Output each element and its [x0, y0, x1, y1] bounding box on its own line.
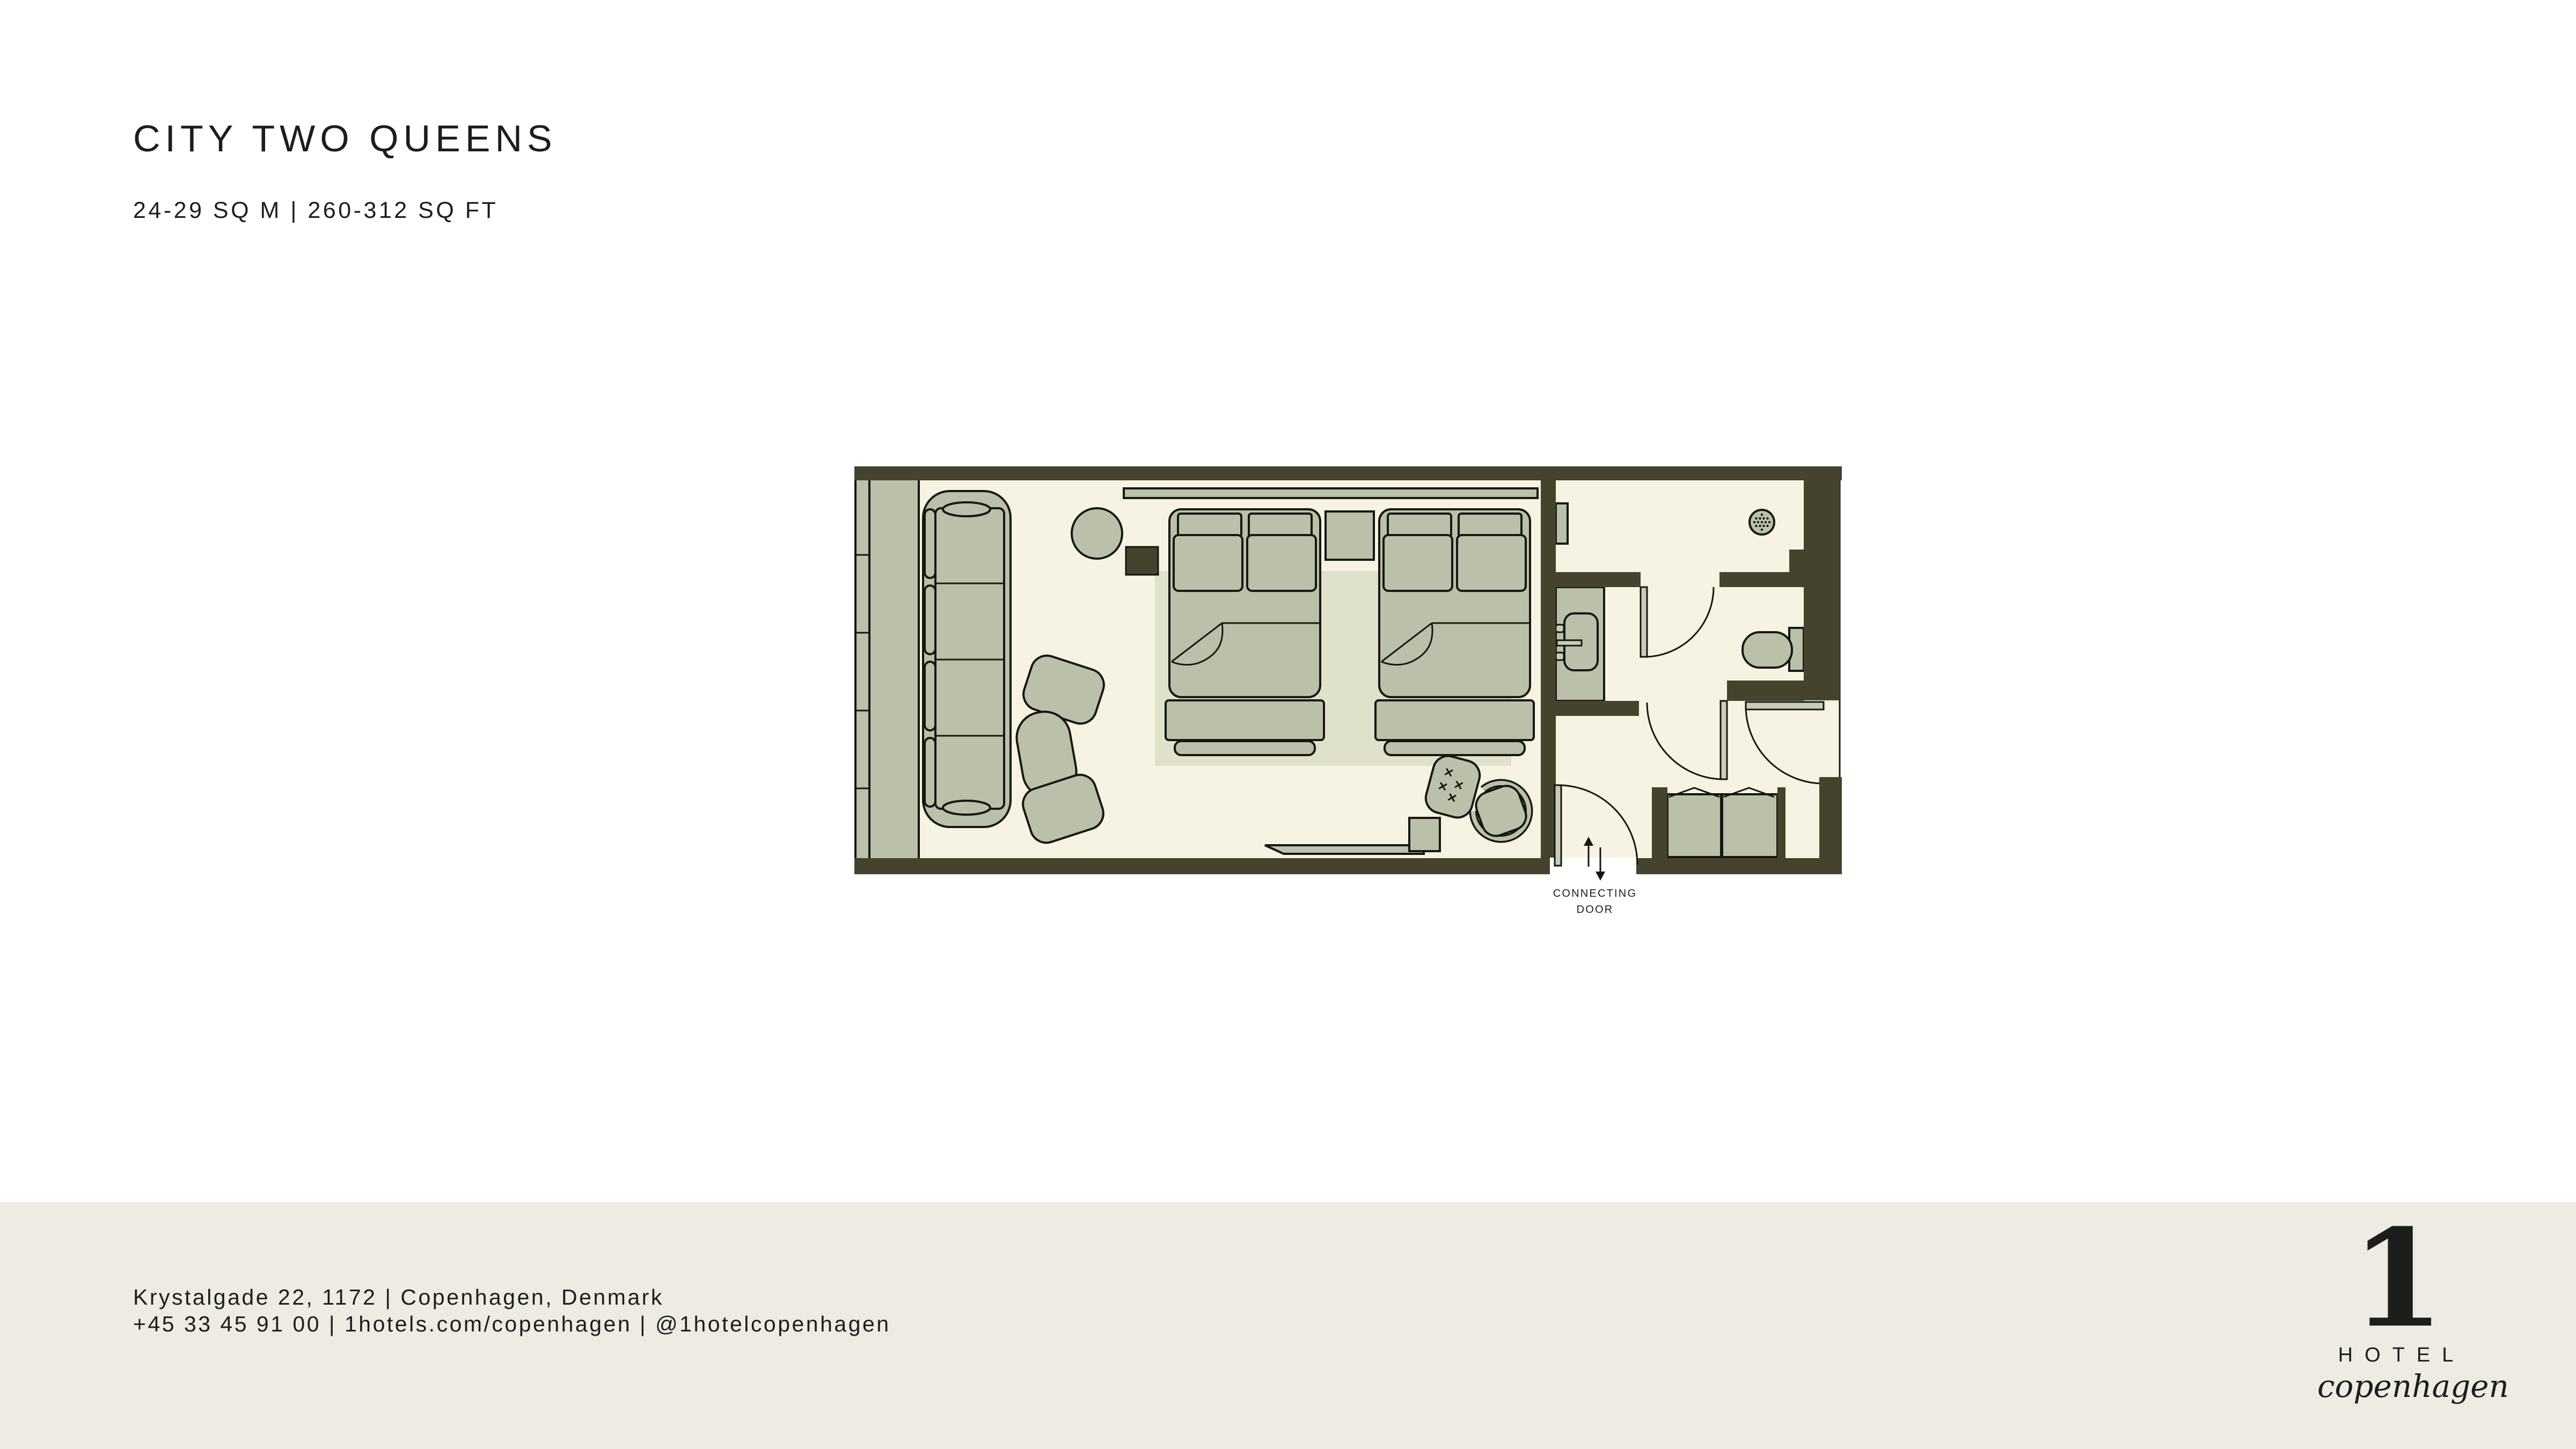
console-shelf	[1124, 488, 1538, 498]
svg-text:DOOR: DOOR	[1577, 904, 1614, 916]
connecting-door-label: CONNECTING DOOR	[1553, 888, 1637, 916]
shower-niche	[1556, 503, 1568, 544]
footer-contact-block: Krystalgade 22, 1172 | Copenhagen, Denma…	[133, 1284, 891, 1337]
window-ledge	[869, 479, 919, 873]
nightstand	[1326, 511, 1374, 560]
svg-text:CONNECTING: CONNECTING	[1553, 888, 1637, 899]
room-size-subtitle: 24-29 SQ M | 260-312 SQ FT	[133, 197, 498, 224]
logo-numeral: 1	[2317, 1221, 2478, 1335]
page-title: CITY TWO QUEENS	[133, 117, 557, 160]
side-table	[1072, 508, 1122, 559]
desk	[1265, 845, 1424, 854]
logo-word: HOTEL	[2317, 1344, 2478, 1367]
window-strip	[855, 479, 869, 873]
logo-script: copenhagen	[2317, 1368, 2478, 1404]
bed-left	[1166, 509, 1324, 755]
media-unit	[1126, 547, 1158, 575]
toilet	[1743, 628, 1804, 671]
shower-drain	[1750, 510, 1774, 535]
vanity	[1556, 587, 1604, 701]
floor-plan-svg: CONNECTING DOOR	[854, 466, 1842, 939]
desk-cabinet	[1409, 818, 1440, 851]
bed-right	[1375, 509, 1534, 755]
footer-address: Krystalgade 22, 1172 | Copenhagen, Denma…	[133, 1284, 891, 1311]
floor-plan: CONNECTING DOOR	[854, 466, 1842, 939]
sofa	[923, 491, 1011, 827]
footer: Krystalgade 22, 1172 | Copenhagen, Denma…	[0, 1202, 2576, 1449]
closet	[1667, 788, 1777, 857]
hotel-logo: 1 HOTEL copenhagen	[2317, 1221, 2478, 1404]
footer-contact: +45 33 45 91 00 | 1hotels.com/copenhagen…	[133, 1311, 891, 1337]
